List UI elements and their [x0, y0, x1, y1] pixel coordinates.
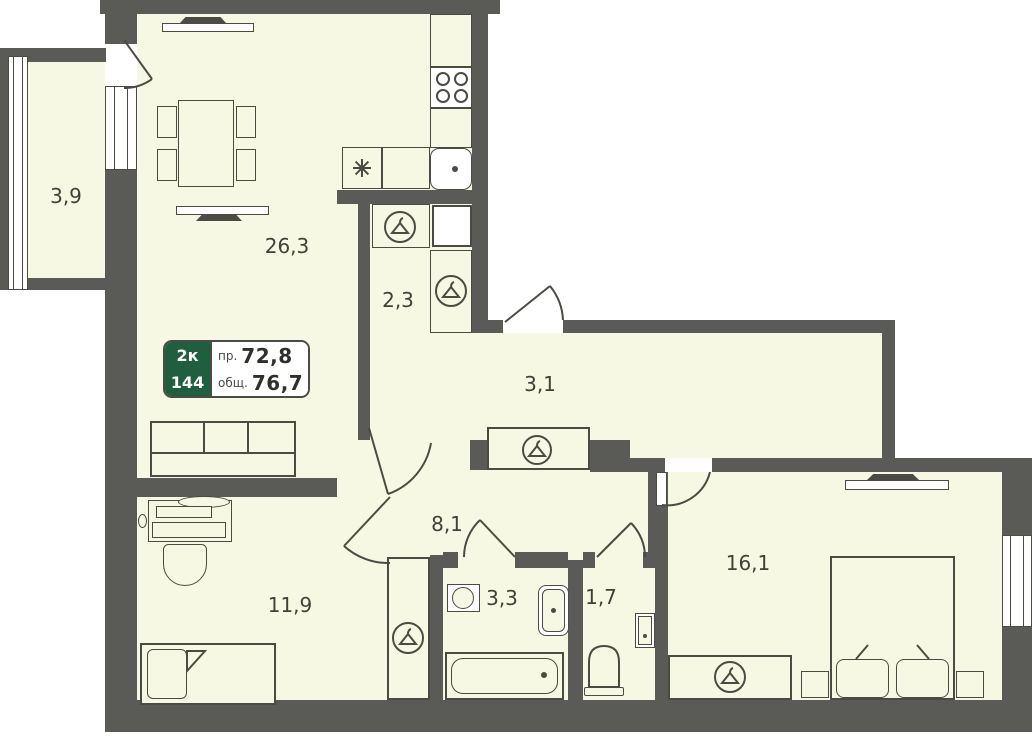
window-frame [114, 87, 128, 169]
radiator-bracket [180, 17, 226, 23]
projected-area-value: 72,8 [241, 344, 292, 368]
room-area-label-corridor-2-3: 2,3 [382, 288, 414, 312]
window-frame [13, 57, 23, 289]
wc-sink-bowl [638, 616, 652, 645]
wall-bedroom-top-right [712, 458, 1002, 472]
room-area-label-bath: 3,3 [486, 586, 518, 610]
sofa-cushion-divider [203, 423, 205, 454]
wall-hall-3-1-top [563, 320, 895, 333]
sofa-seat-line [152, 452, 294, 454]
stove-burner-icon [454, 72, 468, 86]
info-box-right: пр. 72,8 общ. 76,7 [210, 342, 308, 396]
sofa [150, 421, 296, 477]
kitchen-counter [382, 147, 430, 189]
chair [157, 149, 177, 181]
wall-kitchen-east [472, 0, 488, 333]
washbasin-bowl [452, 587, 474, 609]
info-box-left: 2к 144 [165, 342, 210, 396]
pillow [896, 659, 949, 698]
radiator-bracket [196, 215, 242, 221]
bathtub-drain [541, 672, 547, 678]
wall-west-upper-jamb [105, 14, 137, 44]
bath-sink-drain [551, 608, 556, 613]
wall-bath-west [430, 555, 443, 700]
wall-bedroom-east-upper [1002, 458, 1032, 535]
closet-hall [487, 427, 590, 470]
floor-plan: 3,9 26,3 2,3 3,1 8,1 11,9 3,3 1,7 16,1 2… [0, 0, 1032, 742]
kitchen-sink [430, 148, 472, 190]
desk-knob [138, 514, 147, 528]
room-area-label-wc: 1,7 [585, 585, 617, 609]
wall-bath-top-left [443, 552, 458, 568]
apartment-type: 2к [165, 342, 210, 369]
pillow [147, 649, 187, 699]
wall-wc-top-right [643, 552, 668, 568]
wall-west-main [105, 170, 137, 730]
closet-niche [372, 204, 430, 248]
window-bedroom-east [1002, 535, 1032, 627]
window-frame [1010, 536, 1024, 626]
wall-kitchen-bottom [337, 190, 472, 204]
wall-closet-stub-left [470, 440, 487, 470]
area-row-projected: пр. 72,8 [212, 342, 308, 369]
kitchen-counter [430, 14, 472, 67]
toilet-tank [584, 687, 624, 696]
door-entrance [505, 286, 563, 322]
wall-bath-wc-divider [568, 560, 583, 700]
dining-table [178, 100, 234, 187]
kitchen-counter-hob [342, 147, 382, 189]
radiator-living-inner [176, 206, 269, 215]
wall-entrance-jamb-left [487, 320, 503, 333]
radiator-bracket [867, 474, 919, 480]
wall-bath-top-right [515, 552, 568, 568]
apartment-number: 144 [165, 369, 210, 396]
desk-item [156, 506, 212, 518]
chair [236, 149, 256, 181]
total-area-value: 76,7 [252, 371, 303, 395]
wc-sink-drain [643, 634, 647, 638]
closet-2-3 [430, 250, 472, 333]
chair [236, 106, 256, 138]
area-row-total: общ. 76,7 [212, 369, 308, 396]
room-area-label-hall-3-1: 3,1 [524, 372, 556, 396]
projected-area-label: пр. [218, 349, 237, 363]
wall-top [100, 0, 500, 14]
wardrobe-bedroom [668, 655, 792, 700]
nightstand [956, 671, 984, 698]
room-area-label-bedroom-small: 11,9 [268, 593, 313, 617]
apartment-info-box: 2к 144 пр. 72,8 общ. 76,7 [163, 340, 310, 398]
ventilation-shaft [432, 205, 472, 247]
wardrobe-bedroom-small [387, 557, 430, 700]
room-floor-balcony [28, 60, 105, 278]
desk-item [152, 522, 226, 538]
sofa-cushion-divider [247, 423, 249, 454]
wall-wc-top-left [583, 552, 595, 568]
window-balcony-living [105, 86, 137, 170]
room-area-label-living: 26,3 [265, 234, 310, 258]
wall-living-bottom [137, 478, 337, 497]
window-balcony-west [8, 56, 28, 290]
wall-closet-stub-right [590, 440, 630, 472]
radiator-living-top [162, 23, 254, 32]
kitchen-sink-drain [452, 166, 458, 172]
desk-chair [163, 544, 207, 586]
room-area-label-bedroom: 16,1 [726, 551, 771, 575]
stove-burner-icon [454, 89, 468, 103]
wall-corridor-2-3-west [358, 204, 370, 440]
room-area-label-hall-8-1: 8,1 [431, 512, 463, 536]
stove-burner-icon [436, 72, 450, 86]
nightstand [801, 671, 829, 698]
door-leaf-bedroom [656, 472, 667, 506]
radiator-bedroom [845, 480, 949, 490]
stove-burner-icon [436, 89, 450, 103]
wall-wc-east [655, 565, 668, 700]
chair [157, 106, 177, 138]
kitchen-counter [430, 108, 472, 148]
total-area-label: общ. [218, 376, 248, 390]
room-area-label-balcony: 3,9 [50, 184, 82, 208]
pillow [836, 659, 889, 698]
wall-hall-3-1-east [882, 333, 895, 458]
